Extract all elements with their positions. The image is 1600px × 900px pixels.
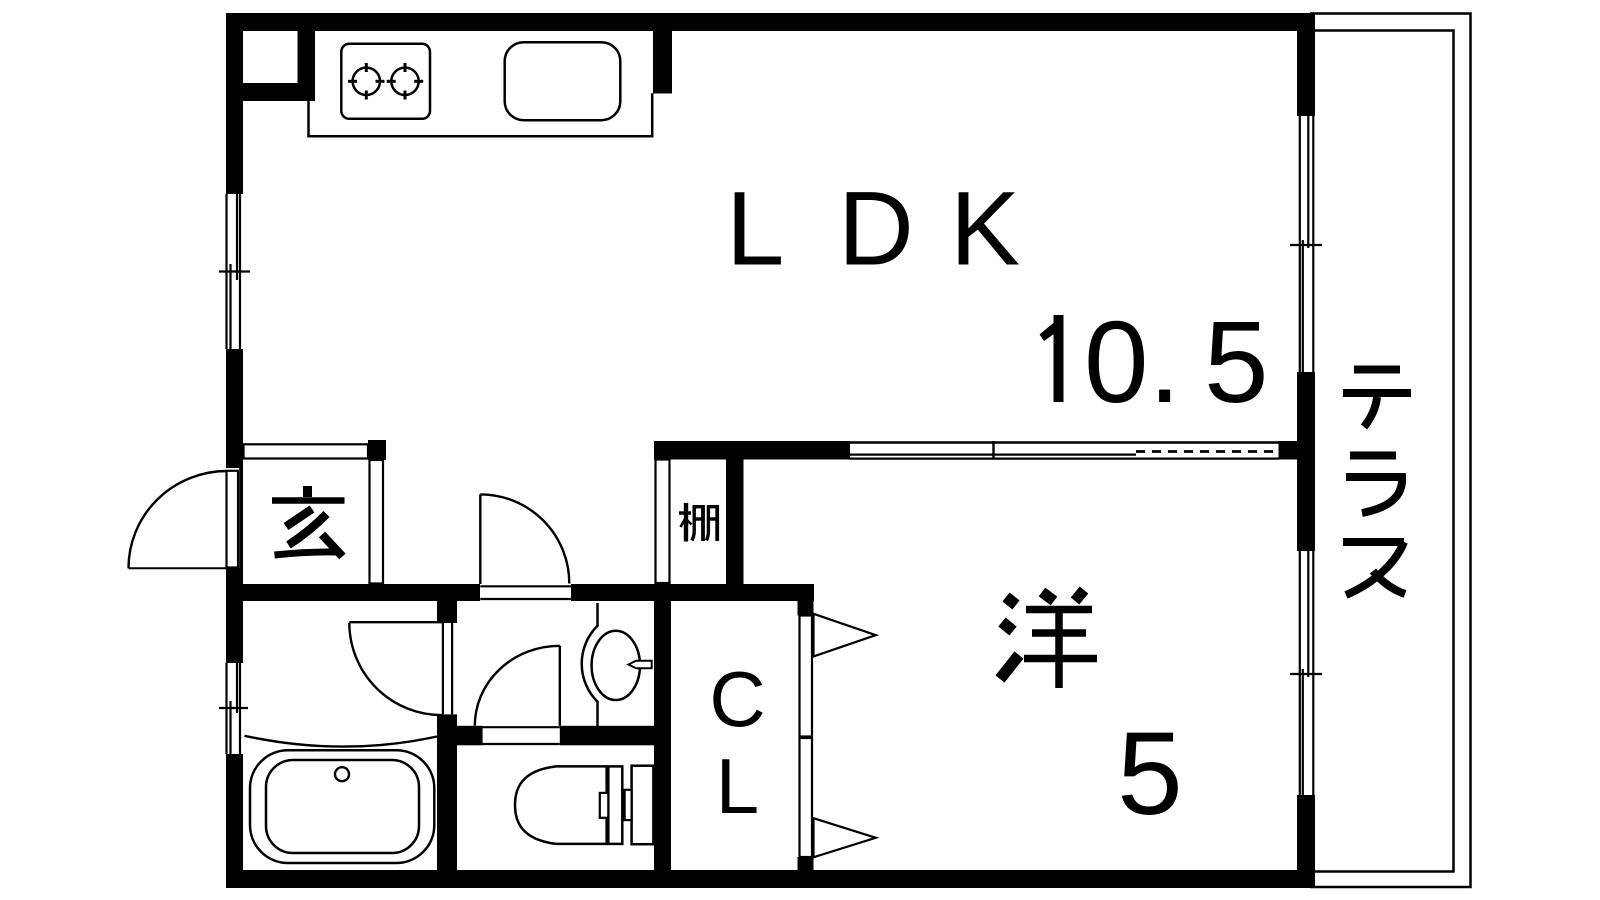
svg-text:L: L [716, 742, 759, 830]
svg-text:5: 5 [1204, 297, 1269, 427]
svg-text:0.: 0. [1084, 297, 1181, 427]
svg-text:L: L [726, 171, 784, 288]
svg-text:K: K [950, 171, 1020, 288]
svg-text:C: C [709, 655, 765, 743]
svg-text:5: 5 [1117, 708, 1183, 840]
svg-text:D: D [838, 171, 914, 288]
